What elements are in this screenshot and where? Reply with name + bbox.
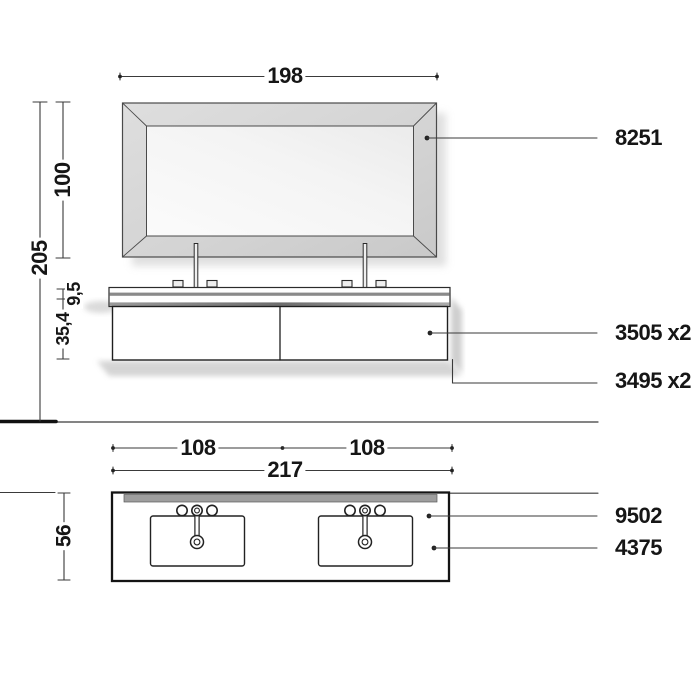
drawing-linework bbox=[0, 0, 700, 700]
dim-label-depth: 56 bbox=[54, 522, 75, 550]
dim-label-total-width: 217 bbox=[264, 459, 305, 481]
dim-label-sink-left: 108 bbox=[177, 437, 218, 459]
dim-label-mirror-height: 100 bbox=[52, 159, 74, 200]
dim-label-total-height: 205 bbox=[29, 237, 51, 278]
callout-label-structure: 3495 x2 bbox=[615, 370, 691, 392]
faucet-base-inner bbox=[195, 508, 200, 513]
elevation-view bbox=[0, 73, 598, 422]
leader-washbasin-9502 bbox=[427, 514, 597, 519]
floor-line bbox=[0, 422, 598, 423]
callout-label-mirror: 8251 bbox=[615, 127, 662, 149]
cabinet-shadow-bottom bbox=[97, 361, 461, 376]
faucet-handle bbox=[376, 281, 386, 288]
faucet-base-inner bbox=[363, 508, 368, 513]
drain-inner bbox=[194, 539, 200, 545]
backsplash-band bbox=[124, 495, 437, 503]
callout-label-basin: 4375 bbox=[615, 537, 662, 559]
faucet-hole-right bbox=[207, 505, 217, 515]
drain-inner bbox=[362, 539, 368, 545]
faucet-stem bbox=[194, 244, 198, 288]
cabinet-elevation bbox=[113, 307, 448, 361]
faucet-hole-left bbox=[177, 505, 187, 515]
countertop-elevation bbox=[109, 288, 450, 307]
counter-strip-lower bbox=[110, 302, 450, 306]
mirror-face bbox=[147, 126, 414, 236]
callout-label-washbasin-top: 9502 bbox=[615, 505, 662, 527]
callout-label-drawers: 3505 x2 bbox=[615, 322, 691, 344]
faucet-hole-left bbox=[345, 505, 355, 515]
leader-basin-4375 bbox=[432, 546, 597, 551]
faucet-handle bbox=[207, 281, 217, 288]
dim-label-sink-right: 108 bbox=[346, 437, 387, 459]
faucet-handle bbox=[173, 281, 183, 288]
technical-drawing-canvas: 198 100 205 9,5 35,4 8251 3505 x2 3495 x… bbox=[0, 0, 700, 700]
faucet-stem bbox=[363, 244, 367, 288]
dim-label-width: 198 bbox=[264, 65, 305, 87]
dim-label-cabinet-height: 35,4 bbox=[54, 309, 72, 348]
leader-structure-3495 bbox=[453, 360, 598, 384]
faucet-hole-right bbox=[375, 505, 385, 515]
counter-strip-upper bbox=[110, 293, 450, 296]
mirror bbox=[123, 103, 437, 257]
faucet-handle bbox=[342, 281, 352, 288]
leader-mirror-8251 bbox=[425, 136, 597, 141]
dim-label-counter-thickness: 9,5 bbox=[65, 279, 83, 309]
